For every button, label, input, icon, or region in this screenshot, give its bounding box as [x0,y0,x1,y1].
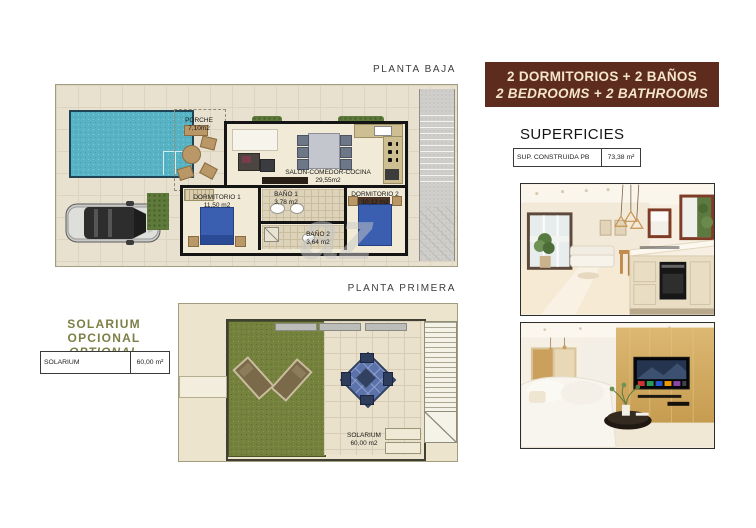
room-label-dormitorio-2: DORMITORIO 2 10,12 m2 [344,191,406,206]
solarium-table: SOLARIUM 60,00 m² [40,351,170,374]
roof-stairs [424,321,457,413]
kitchen-living-render [521,184,714,315]
side-ledge [179,376,227,398]
sofa [232,129,278,151]
bedrooms-bathrooms-banner: 2 DORMITORIOS + 2 BAÑOS 2 BEDROOMS + 2 B… [485,62,719,107]
dining-chair [297,135,309,146]
banner-line-en: 2 BEDROOMS + 2 BATHROOMS [496,85,708,102]
pergola-beam [365,323,407,331]
room-area: 60,00 m2 [329,440,399,448]
room-label-dormitorio-1: DORMITORIO 1 11,50 m2 [176,194,258,209]
banner-line-es: 2 DORMITORIOS + 2 BAÑOS [507,68,697,85]
dining-chair [340,135,352,146]
kitchen-hob [386,140,398,164]
planta-primera-title: PLANTA PRIMERA [336,283,456,294]
room-name: BAÑO 2 [290,231,346,239]
grass-roof-area [228,321,326,457]
superficies-row-value: 73,38 m² [602,149,640,166]
terrace-chair [360,353,374,363]
terrace-chair [341,372,351,386]
planta-primera-floorplan: SOLARIUM 60,00 m2 [178,303,458,462]
superficies-heading: SUPERFICIES [520,126,624,143]
brochure-page: PLANTA BAJA [0,0,756,528]
room-name: SOLARIUM [329,432,399,440]
garden-planter [147,193,169,230]
nightstand [235,236,246,247]
room-label-solarium: SOLARIUM 60,00 m2 [329,432,399,447]
bed-pillow [201,235,233,244]
solarium-row-value: 60,00 m² [131,352,169,373]
room-area: 3,78 m2 [260,199,312,207]
stairs-landing [424,411,457,443]
room-label-bano-1: BAÑO 1 3,78 m2 [260,191,312,206]
room-label-porche: PORCHE 7,10m2 [172,117,226,132]
porch-table [182,145,201,164]
solarium-heading-es: SOLARIUM OPCIONAL [36,317,172,345]
room-name: DORMITORIO 2 [344,191,406,199]
living-tv-render [521,323,714,448]
pergola-beam [275,323,317,331]
room-name: SALON-COMEDOR-COCINA [268,169,388,177]
sun-lounger [232,356,274,400]
planta-baja-floorplan: PORCHE 7,10m2 SALON-COMEDOR-COCINA 29,55… [55,84,458,267]
exterior-stairs [420,115,454,187]
room-area: 10,12 m2 [344,199,406,207]
interior-photo-kitchen-living [520,183,715,316]
pergola-beam [319,323,361,331]
planta-baja-title: PLANTA BAJA [336,64,456,75]
solarium-row-label: SOLARIUM [41,352,131,373]
room-label-salon: SALON-COMEDOR-COCINA 29,55m2 [268,169,388,184]
terrace-chair [360,395,374,405]
room-area: 7,10m2 [172,125,226,133]
room-label-bano-2: BAÑO 2 3,64 m2 [290,231,346,246]
dining-chair [297,147,309,158]
cushion [242,156,251,163]
terrace-chair [383,372,393,386]
superficies-table: SUP. CONSTRUIDA PB 73,38 m² [513,148,641,167]
nightstand [188,236,199,247]
room-area: 29,55m2 [268,177,388,185]
shower [264,227,279,242]
room-area: 11,50 m2 [176,202,258,210]
superficies-row-label: SUP. CONSTRUIDA PB [514,149,602,166]
room-name: PORCHE [172,117,226,125]
bed-dormitorio-2 [358,204,392,246]
room-name: BAÑO 1 [260,191,312,199]
room-name: DORMITORIO 1 [176,194,258,202]
side-gravel-path [419,89,455,261]
interior-wall [258,221,347,224]
dining-table [308,133,340,169]
bed-dormitorio-1 [200,207,234,245]
gravel-hatch [420,207,454,261]
dining-chair [340,147,352,158]
kitchen-sink [374,126,392,136]
sun-lounger [270,358,312,402]
room-area: 3,64 m2 [290,239,346,247]
interior-photo-living-tv [520,322,715,449]
parasol-table-set [344,356,388,400]
